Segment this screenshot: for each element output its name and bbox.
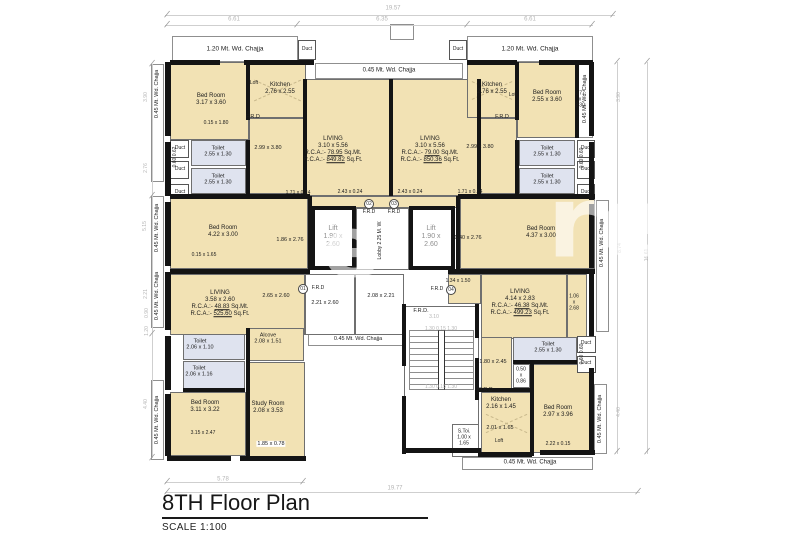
wall-segment	[246, 62, 250, 120]
room-dim: 2.99 x 3.80	[466, 144, 493, 150]
outer-dim: 6.35	[376, 17, 388, 24]
chajja-label: 0.45 Mt. Wd. Chajja	[597, 395, 603, 443]
frd-number-circle: 03	[389, 199, 399, 209]
outer-dim: 5.15	[143, 221, 149, 231]
duct-label: Duct	[302, 47, 312, 53]
frd-label: F.R.D	[495, 114, 509, 120]
outer-dim: 1.20	[145, 326, 151, 336]
wall-segment	[515, 140, 519, 196]
loft-label: Loft	[250, 81, 258, 87]
wall-segment	[244, 60, 314, 65]
dimension-tick: /	[148, 452, 156, 463]
bedroom-label: Bed Room3.17 x 3.60	[196, 93, 226, 107]
chajja-label: 0.45 Mt. Wd. Chajja	[154, 204, 160, 252]
wall-segment	[589, 272, 594, 336]
wall-segment	[246, 328, 250, 458]
frd-label: F.R.D	[431, 287, 444, 293]
stair-dim: 3.10	[429, 315, 439, 321]
alcove-label: Alcove2.08 x 1.51	[254, 333, 281, 346]
kitchen-label: Kitchen2.76 x 2.55	[477, 82, 507, 96]
dimension-line	[165, 482, 305, 483]
wall-segment	[475, 304, 479, 338]
outer-dim: 4.40	[617, 407, 623, 417]
room-dim: 1.06x2.68	[569, 294, 579, 311]
wall-segment	[467, 60, 517, 65]
kitchen-label: Kitchen2.16 x 1.45	[486, 397, 516, 411]
wall-segment	[589, 62, 594, 136]
wall-segment	[170, 269, 310, 274]
wall-segment	[404, 448, 481, 453]
room-dim: 1.40 x 2.76	[454, 235, 481, 241]
outer-dim: 2.76	[144, 163, 150, 173]
dimension-tick: /	[163, 19, 171, 30]
wall-segment	[165, 336, 171, 390]
wall-dim: 1.71 x 0.24	[286, 191, 311, 197]
wall-segment	[589, 368, 594, 454]
dimension-tick: /	[613, 446, 621, 457]
outer-dim: 0.90	[145, 308, 151, 318]
living-label: LIVING4.14 x 2.83R.C.A.:- 46.38 Sq.Mt.R.…	[490, 289, 549, 317]
wall-segment	[402, 304, 406, 366]
bedroom-label: Bed Room4.22 x 3.00	[208, 225, 238, 239]
loft-label: Loft	[509, 93, 517, 99]
duct-dim: 0.60 0.60	[580, 344, 586, 365]
watermark: e	[322, 199, 382, 298]
dimension-tick: /	[463, 19, 471, 30]
dimension-tick: /	[643, 56, 651, 67]
plan-scale: SCALE 1:100	[162, 522, 428, 533]
bedroom-label: Bed Room2.55 x 3.60	[532, 90, 562, 104]
wall-segment	[165, 272, 171, 330]
bedroom-label: Bed Room2.97 x 3.96	[543, 405, 573, 419]
window-dim: 0.15 x 1.80	[204, 121, 229, 127]
dimension-tick: /	[613, 56, 621, 67]
servant-toilet-label: S.Toi.1.00 x1.65	[457, 429, 471, 446]
dimension-tick: /	[609, 9, 617, 20]
chajja-label: 0.45 Mt. Wd. Chajja	[154, 272, 160, 320]
toilet-label: Toilet2.55 x 1.30	[534, 342, 561, 355]
room-dim: 2.01 x 1.65	[486, 425, 513, 431]
dimension-tick: /	[299, 476, 307, 487]
lift-label: Lift1.90 x2.60	[421, 225, 440, 249]
dimension-tick: /	[163, 476, 171, 487]
loft-label: Loft	[495, 439, 503, 445]
stair-dim: 1.30 0.15 1.30	[425, 327, 457, 333]
wall-segment	[475, 358, 479, 400]
frd-label: F.R.D.	[413, 308, 428, 314]
dimension-line	[165, 25, 593, 26]
room-dim: 1.86 x 2.76	[276, 237, 303, 243]
duct-label: Duct	[175, 190, 185, 196]
outer-dim: 2.21	[144, 289, 150, 299]
stair-rail	[438, 330, 445, 390]
wall-segment	[515, 62, 519, 120]
wall-segment	[165, 62, 171, 136]
wall-segment	[170, 60, 220, 65]
wall-segment	[165, 202, 171, 266]
outer-dim: 6.61	[228, 17, 240, 24]
watermark: re	[547, 164, 668, 281]
room-dim: 2.21 x 2.60	[311, 300, 338, 306]
title-block: 8TH Floor Plan SCALE 1:100	[162, 490, 428, 533]
wall-segment	[246, 140, 250, 196]
stair-dim: 1.30 0.15 1.30	[425, 385, 457, 391]
passage-top-left	[249, 118, 305, 194]
dimension-tick: /	[293, 19, 301, 30]
wall-segment	[167, 456, 231, 461]
window-dim: 3.15 x 2.47	[191, 431, 216, 437]
toilet-label: Toilet2.06 x 1.16	[185, 366, 212, 379]
kitchen-label: Kitchen2.76 x 2.55	[265, 82, 295, 96]
outer-dim: 3.90	[144, 92, 150, 102]
roof-box	[390, 24, 414, 40]
frd-number-circle: 01	[298, 284, 308, 294]
chajja-label: 0.45 Mt. Wd. Chajja	[154, 70, 160, 118]
wall-segment	[530, 364, 534, 456]
wall-segment	[456, 196, 460, 270]
frd-number-circle: 04	[446, 285, 456, 295]
chajja-label: 0.45 Mt. Wd. Chajja	[334, 336, 382, 342]
room-dim: 1.80 x 2.45	[479, 359, 506, 365]
dimension-tick: /	[643, 446, 651, 457]
wall-segment	[183, 388, 245, 392]
room-dim: 1.85 x 0.78	[256, 441, 285, 447]
wall-dim: 2.43 x 0.24	[398, 190, 423, 196]
dimension-tick: /	[634, 486, 642, 497]
outer-dim: 6.61	[524, 17, 536, 24]
bedroom-label: Bed Room3.11 x 3.22	[190, 400, 219, 414]
room-dim: 0.50x0.86	[516, 367, 526, 384]
chajja-label: 0.45 Mt. Wd. Chajja	[504, 460, 557, 467]
duct-dim: 0.60 0.62	[173, 147, 179, 168]
wall-segment	[477, 79, 481, 196]
outer-dim: 4.40	[144, 399, 150, 409]
dimension-line	[152, 64, 153, 458]
wall-segment	[478, 452, 532, 457]
duct-label: Duct	[175, 167, 185, 173]
passage-top-right	[479, 118, 517, 194]
frd-label: F.R.D	[246, 114, 260, 120]
chajja-label: 0.45 Mt. Wd. Chajja	[582, 75, 588, 123]
toilet-label: Toilet2.55 x 1.30	[533, 146, 560, 159]
duct-label: Duct	[453, 47, 463, 53]
living-label: LIVING3.10 x 5.56R.C.A.:- 79.00 Sq.Mt.R.…	[400, 136, 459, 164]
toilet-label: Toilet2.55 x 1.30	[204, 174, 231, 187]
chajja-label: 1.20 Mt. Wd. Chajja	[501, 45, 558, 52]
window-dim: 2.22 x 0.15	[546, 442, 571, 448]
window-dim: 0.15 x 1.65	[192, 253, 217, 259]
room-dim: 1.34 x 1.50	[446, 279, 471, 285]
outer-dim: 3.90	[617, 92, 623, 102]
wall-segment	[308, 196, 312, 270]
chajja-label: 1.20 Mt. Wd. Chajja	[206, 45, 263, 52]
frd-label: F.R.D	[388, 210, 401, 216]
wall-dim: 2.43 x 0.24	[338, 190, 363, 196]
toilet-label: Toilet2.55 x 1.30	[204, 146, 231, 159]
dimension-tick: /	[588, 19, 596, 30]
outer-dim: 19.57	[385, 6, 400, 13]
living-label: LIVING3.58 x 2.60R.C.A.:- 48.83 Sq.Mt.R.…	[190, 290, 249, 318]
room-dim: 2.65 x 2.60	[262, 293, 289, 299]
wall-segment	[513, 360, 577, 364]
floor-plan: //////////////////1.20 Mt. Wd. Chajja1.2…	[0, 0, 800, 533]
wall-segment	[540, 450, 595, 455]
study-label: Study Room2.08 x 3.53	[251, 401, 284, 415]
wall-segment	[165, 394, 171, 456]
toilet-label: Toilet2.06 x 1.10	[186, 339, 213, 352]
chajja-label: 0.45 Mt. Wd. Chajja	[154, 396, 160, 444]
wall-segment	[165, 142, 171, 196]
outer-dim: 5.78	[217, 477, 229, 484]
plan-title: 8TH Floor Plan	[162, 490, 428, 519]
living-label: LIVING3.10 x 5.56R.C.A.:- 78.95 Sq.Mt.R.…	[303, 136, 362, 164]
room-dim: 2.99 x 3.80	[254, 145, 281, 151]
wall-dim: 1.71 x 0.24	[458, 190, 483, 196]
wall-segment	[389, 79, 393, 196]
wall-segment	[539, 60, 593, 65]
dimension-tick: /	[163, 9, 171, 20]
chajja-label: 0.45 Mt. Wd. Chajja	[363, 68, 416, 75]
wall-segment	[402, 396, 406, 454]
frd-label: F.R.D	[479, 387, 493, 393]
